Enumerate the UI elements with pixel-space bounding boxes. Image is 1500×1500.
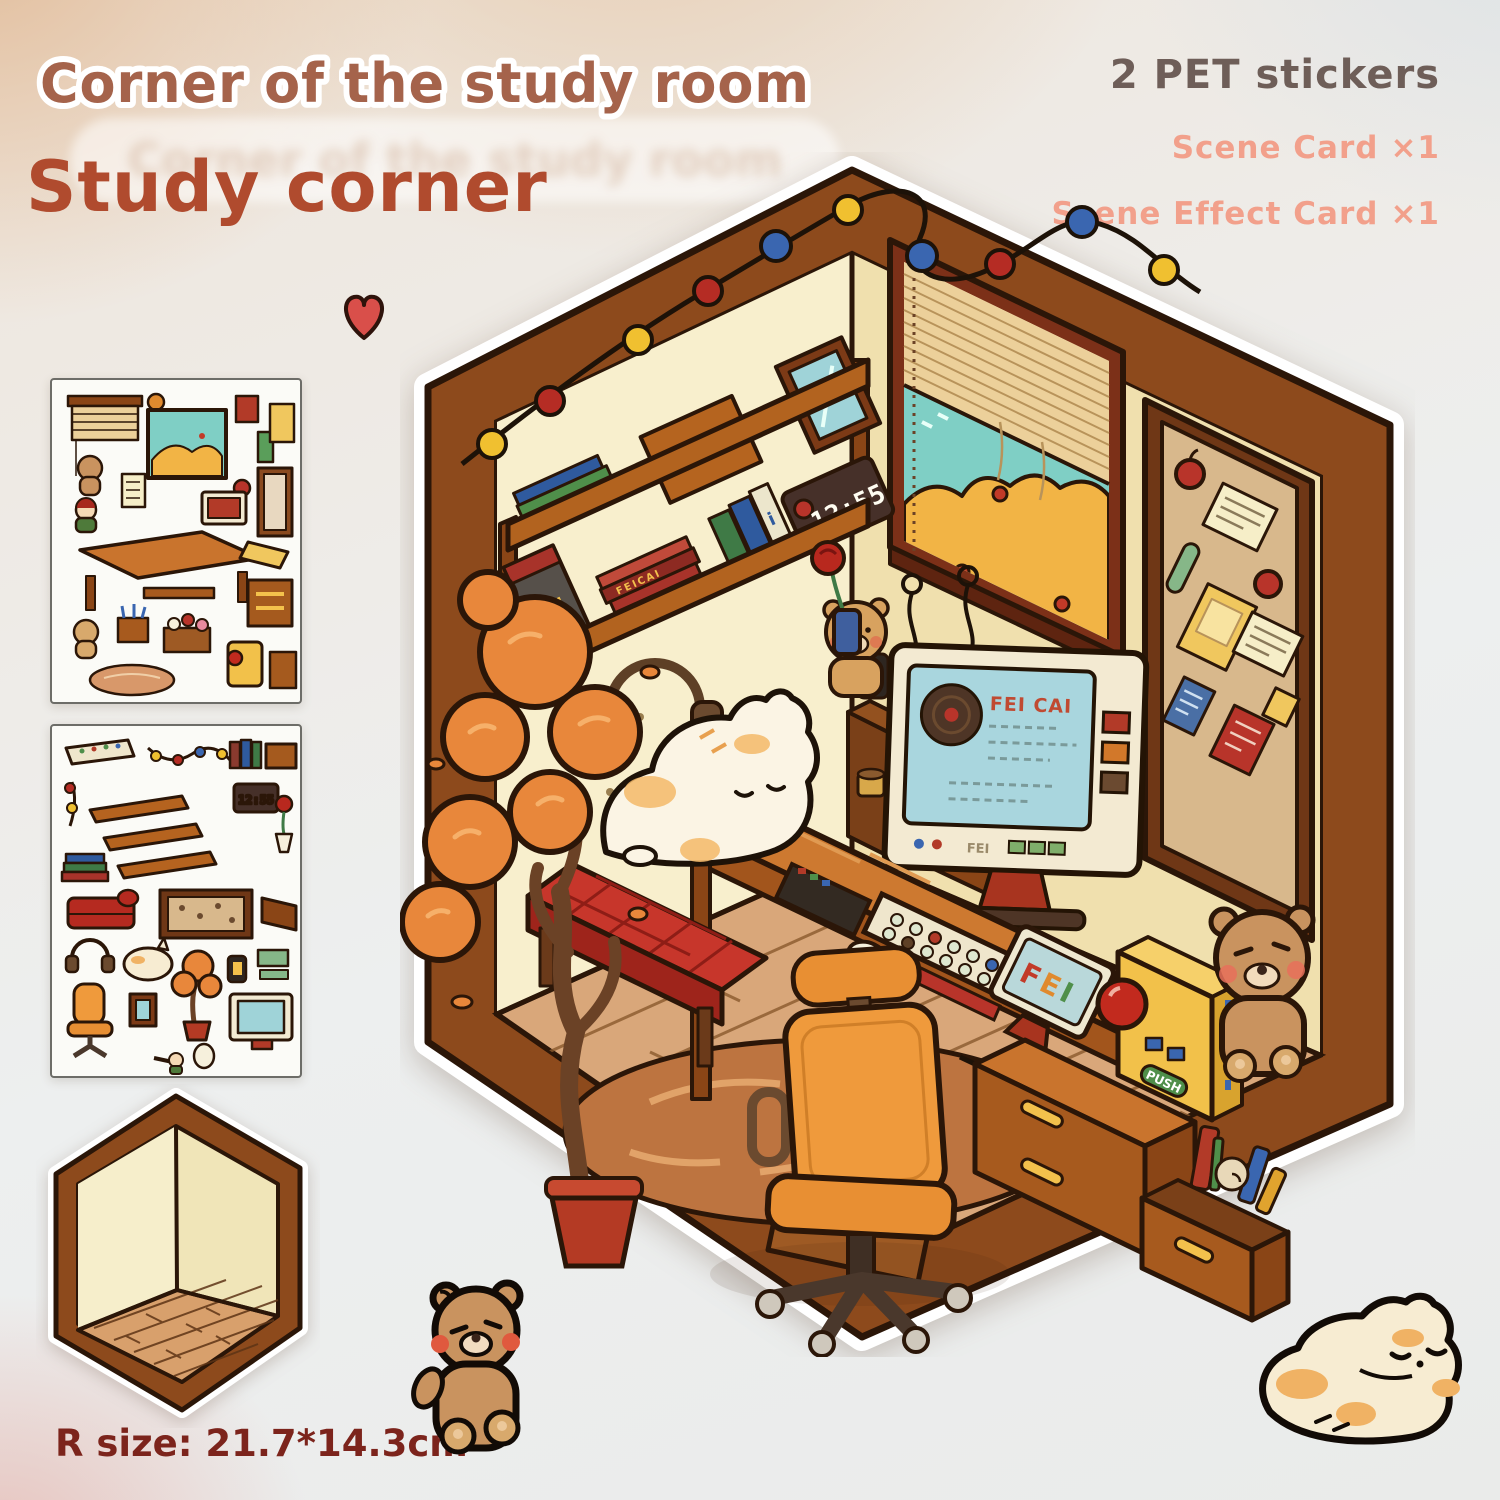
mini-desk	[80, 532, 260, 610]
mini-bear	[78, 456, 102, 495]
tree-pot	[546, 1178, 642, 1266]
screen-title: FEI CAI	[989, 693, 1072, 718]
mini-keyboard	[66, 740, 134, 764]
monitor-label: FEI	[967, 841, 990, 857]
mini-lantern	[228, 956, 246, 982]
sticker-count-label: 2 PET stickers	[1005, 52, 1440, 98]
headline: Corner of the study room	[22, 34, 832, 134]
mini-pc	[202, 492, 246, 524]
mini-cat	[124, 938, 172, 980]
mini-bear-2	[74, 620, 98, 658]
mini-doll	[76, 498, 96, 532]
mini-corkboard	[160, 890, 252, 938]
mini-clock: 12:55	[234, 784, 278, 812]
mini-tree	[172, 951, 221, 1040]
mini-pencil-cup	[118, 604, 148, 642]
mini-rose	[276, 796, 292, 852]
mini-headphones	[66, 940, 114, 972]
mini-doll-2	[169, 1053, 183, 1074]
mini-flower-box	[164, 614, 210, 652]
scene-sticker: FEI! FEICAI i 12:55	[400, 152, 1415, 1357]
red-ball-button	[1098, 980, 1146, 1028]
mini-coffee-machine	[228, 642, 262, 686]
mini-frame	[130, 994, 156, 1026]
mini-tickets	[258, 950, 288, 979]
size-label: R size: 21.7*14.3cm	[55, 1422, 468, 1465]
mini-tray	[240, 542, 288, 568]
bulb-blue	[761, 231, 791, 261]
mini-rug	[90, 665, 174, 695]
sticker-sheet-1	[50, 378, 302, 704]
mini-mirror	[258, 468, 292, 536]
mini-sofa	[68, 890, 138, 928]
room-base-card	[36, 1084, 320, 1428]
bulb-red	[536, 387, 564, 415]
product-page: Corner of the study room Corner of the s…	[0, 0, 1500, 1500]
corkboard	[1145, 400, 1312, 940]
mini-lamp	[194, 1044, 214, 1068]
mini-small-drawer	[270, 652, 296, 688]
bear-sticker	[410, 1276, 555, 1476]
mini-planks	[90, 796, 216, 878]
mini-book-stack	[62, 854, 108, 881]
headline-text: Corner of the study room	[40, 52, 810, 115]
heart-icon	[334, 286, 394, 348]
mini-books-box	[230, 740, 296, 768]
mug	[858, 769, 884, 796]
mini-orange	[148, 394, 164, 410]
mini-clock-time: 12:55	[238, 793, 274, 807]
bulb-yellow	[478, 430, 506, 458]
mini-window	[148, 410, 226, 478]
sticker-sheet-2: 12:55	[50, 724, 302, 1078]
cat-sticker	[1240, 1292, 1485, 1457]
chair-seat	[767, 1175, 956, 1239]
mini-monitor	[230, 994, 292, 1049]
mini-drawer-unit	[248, 580, 292, 626]
mini-corner-shelf	[262, 898, 296, 930]
mini-chair	[68, 984, 112, 1056]
